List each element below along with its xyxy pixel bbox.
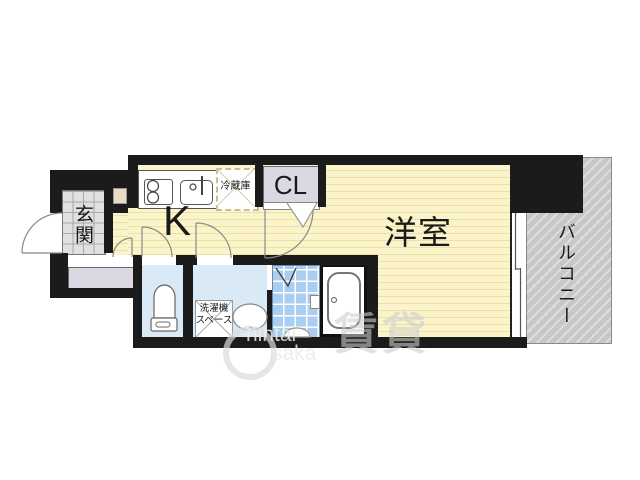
wall-segment — [133, 255, 142, 348]
closet-track — [263, 202, 320, 210]
wall-segment — [183, 265, 193, 338]
wall-segment — [133, 337, 527, 348]
western-room-label: 洋室 — [368, 216, 468, 249]
wall-segment — [176, 255, 197, 265]
floorplan-canvas: 玄関 K CL 冷蔵庫 洋室 バルコニー 洗濯機 スペース hintai sak… — [0, 0, 640, 480]
watermark-kanji: 賃貸 — [334, 313, 430, 357]
wall-segment — [50, 288, 133, 298]
wall-segment — [50, 170, 128, 190]
watermark-text-line2: saka — [272, 343, 316, 364]
washer-space-label: 洗濯機 スペース — [193, 303, 235, 326]
toilet-room — [142, 265, 183, 338]
wall-segment — [233, 255, 378, 265]
meter-box — [113, 188, 127, 204]
wall-segment — [128, 155, 138, 208]
bath-shelf — [310, 295, 320, 309]
wall-segment — [510, 155, 583, 213]
shoe-cabinet — [68, 267, 135, 290]
closet-label: CL — [263, 172, 318, 198]
washer-space-label-line1: 洗濯機 — [193, 303, 235, 315]
entry-door-arc — [22, 213, 62, 253]
balcony-label: バルコニー — [557, 222, 575, 327]
wall-segment — [255, 155, 263, 207]
refrigerator-label: 冷蔵庫 — [214, 182, 257, 192]
washer-space-label-line2: スペース — [193, 315, 235, 327]
wall-segment — [50, 190, 62, 213]
wall-segment — [104, 213, 113, 253]
entrance-label: 玄関 — [73, 204, 92, 246]
wall-segment — [318, 155, 326, 207]
balcony-window — [510, 213, 527, 341]
kitchen-label: K — [163, 200, 191, 242]
